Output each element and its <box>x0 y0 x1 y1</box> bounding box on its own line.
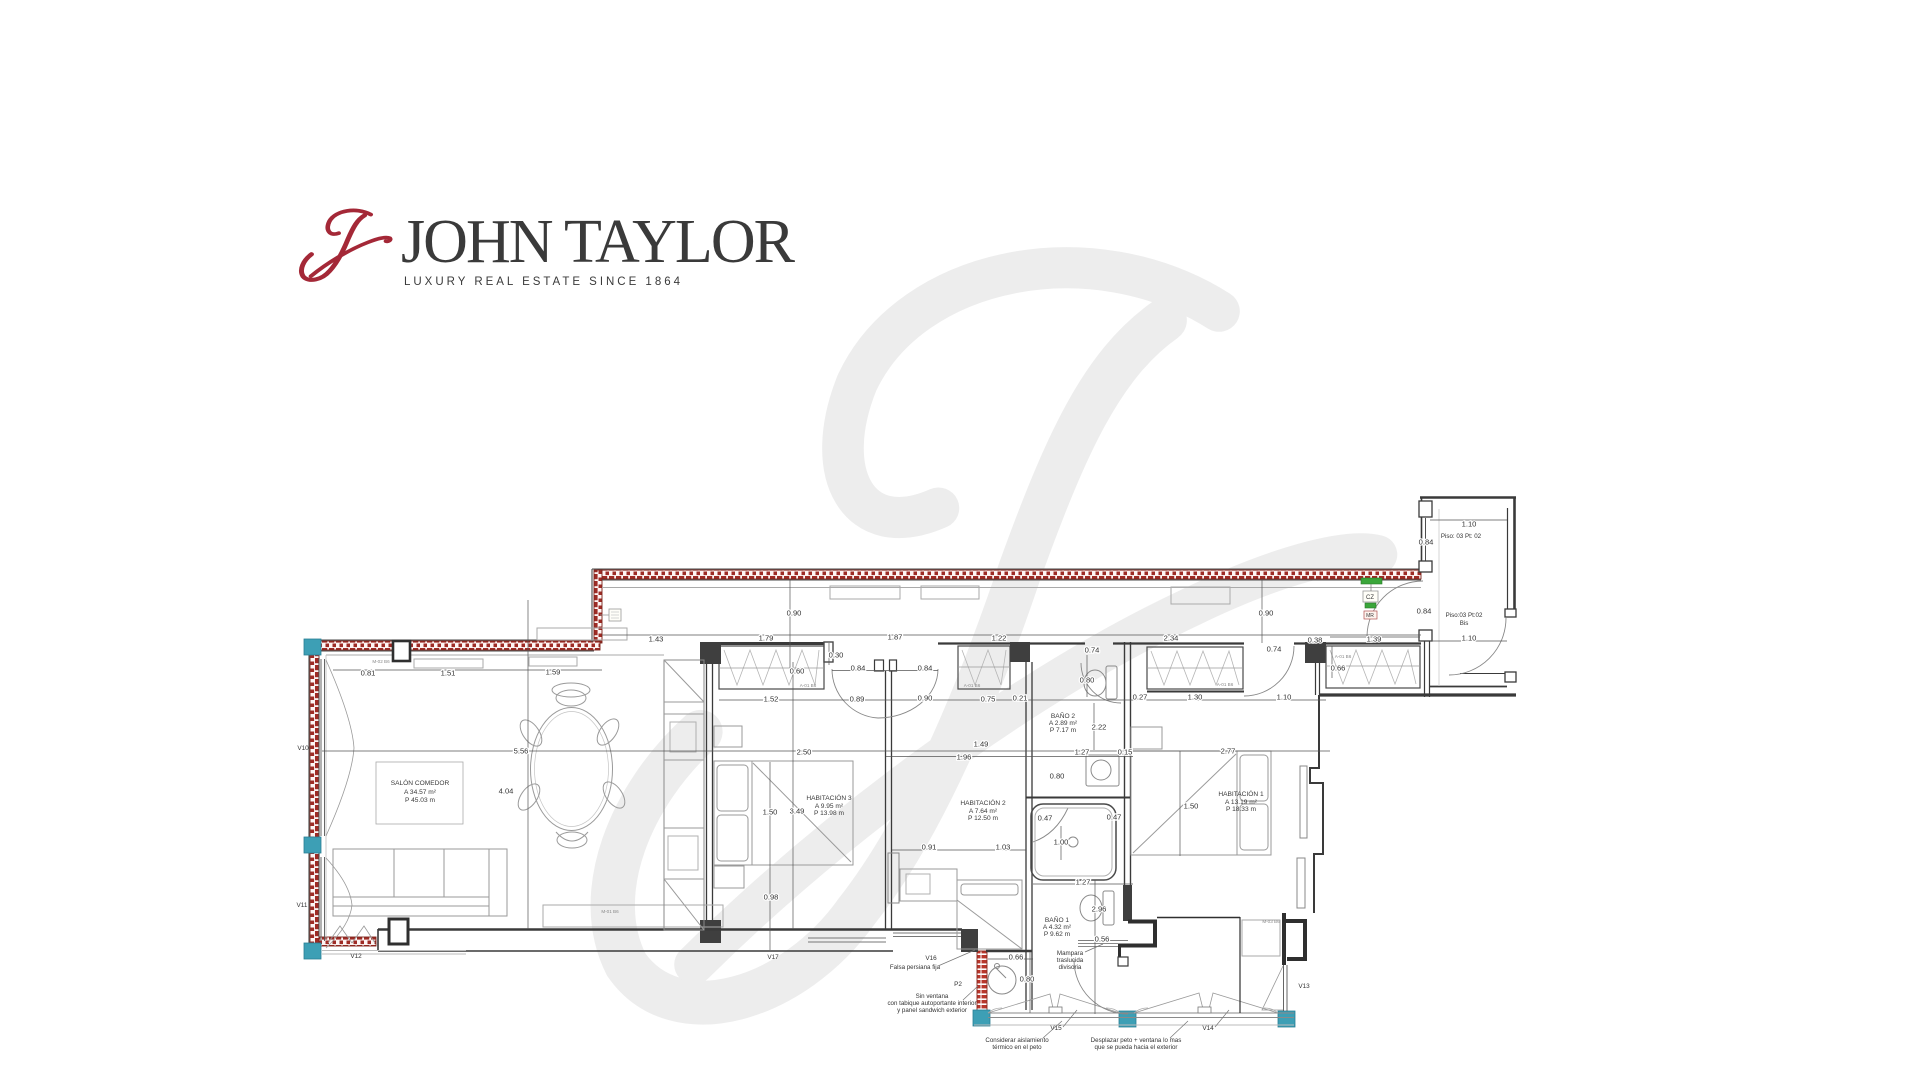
svg-text:1.39: 1.39 <box>1367 635 1382 644</box>
svg-text:1.87: 1.87 <box>888 633 903 642</box>
svg-text:1.59: 1.59 <box>546 668 561 677</box>
svg-text:0.84: 0.84 <box>1419 538 1434 547</box>
svg-text:0.60: 0.60 <box>790 667 805 676</box>
svg-text:V17: V17 <box>767 954 779 961</box>
svg-text:P 18.33 m: P 18.33 m <box>1226 806 1256 813</box>
svg-text:1.51: 1.51 <box>441 669 456 678</box>
svg-text:A-01 B6: A-01 B6 <box>800 683 817 688</box>
svg-text:P 12.50 m: P 12.50 m <box>968 815 998 822</box>
svg-text:V16: V16 <box>925 955 937 962</box>
svg-text:LUXURY REAL ESTATE SINCE 1864: LUXURY REAL ESTATE SINCE 1864 <box>404 276 681 288</box>
svg-text:0.27: 0.27 <box>1133 693 1148 702</box>
svg-text:P 45.03 m: P 45.03 m <box>405 797 435 804</box>
svg-text:P 13.98 m: P 13.98 m <box>814 810 844 817</box>
svg-text:0.84: 0.84 <box>918 664 933 673</box>
svg-text:1.43: 1.43 <box>649 635 664 644</box>
svg-text:Piso:03 Pt:02: Piso:03 Pt:02 <box>1446 612 1483 619</box>
svg-text:Mampara: Mampara <box>1057 950 1084 957</box>
svg-text:1.96: 1.96 <box>957 753 972 762</box>
svg-text:1.03: 1.03 <box>996 843 1011 852</box>
svg-text:1.10: 1.10 <box>1277 693 1292 702</box>
svg-text:Falsa persiana fija: Falsa persiana fija <box>890 964 941 971</box>
svg-text:0.47: 0.47 <box>1038 814 1053 823</box>
svg-text:A 4.32 m²: A 4.32 m² <box>1043 924 1072 931</box>
svg-text:0.74: 0.74 <box>1267 645 1282 654</box>
svg-text:0.90: 0.90 <box>1259 609 1274 618</box>
svg-text:que se pueda hacia el exterior: que se pueda hacia el exterior <box>1095 1044 1178 1051</box>
svg-text:1.10: 1.10 <box>1462 520 1477 529</box>
svg-text:0.80: 0.80 <box>1050 772 1065 781</box>
svg-text:A 7.64 m²: A 7.64 m² <box>969 808 998 815</box>
svg-text:con tabique autoportante inter: con tabique autoportante interior <box>887 1000 976 1007</box>
svg-text:SALÓN COMEDOR: SALÓN COMEDOR <box>391 778 450 787</box>
svg-text:0.90: 0.90 <box>787 609 802 618</box>
svg-text:0.75: 0.75 <box>981 695 996 704</box>
svg-text:M-03 B6: M-03 B6 <box>1262 919 1280 924</box>
svg-text:5.56: 5.56 <box>514 747 529 756</box>
svg-text:1.52: 1.52 <box>764 695 779 704</box>
svg-text:0.21: 0.21 <box>1013 694 1028 703</box>
svg-text:Bis: Bis <box>1460 620 1469 627</box>
svg-text:0.98: 0.98 <box>764 893 779 902</box>
svg-text:0.30: 0.30 <box>829 651 844 660</box>
svg-text:0.91: 0.91 <box>922 843 937 852</box>
svg-text:V14: V14 <box>1202 1025 1214 1032</box>
svg-text:2.34: 2.34 <box>1164 634 1179 643</box>
svg-text:Desplazar peto + ventana lo ma: Desplazar peto + ventana lo mas <box>1091 1037 1182 1044</box>
svg-text:térmico en el peto: térmico en el peto <box>992 1044 1042 1051</box>
svg-text:JOHN TAYLOR: JOHN TAYLOR <box>401 208 796 276</box>
svg-text:0.90: 0.90 <box>918 694 933 703</box>
svg-text:2.50: 2.50 <box>797 748 812 757</box>
svg-text:P2: P2 <box>954 981 962 988</box>
svg-text:A 13.19 m²: A 13.19 m² <box>1225 799 1258 806</box>
svg-text:1.22: 1.22 <box>992 634 1007 643</box>
svg-text:HABITACIÓN 3: HABITACIÓN 3 <box>806 793 852 802</box>
svg-text:0.15: 0.15 <box>1118 748 1133 757</box>
svg-text:A-01 B6: A-01 B6 <box>964 683 981 688</box>
svg-text:1.27: 1.27 <box>1075 748 1090 757</box>
svg-text:HABITACIÓN 2: HABITACIÓN 2 <box>960 798 1006 807</box>
svg-text:Piso: 03 Pt: 02: Piso: 03 Pt: 02 <box>1441 533 1482 540</box>
svg-text:Considerar aislamiento: Considerar aislamiento <box>985 1037 1049 1044</box>
svg-text:BAÑO 2: BAÑO 2 <box>1051 711 1076 720</box>
svg-text:4.04: 4.04 <box>499 787 514 796</box>
svg-text:0.84: 0.84 <box>851 664 866 673</box>
svg-text:traslucida: traslucida <box>1057 957 1084 964</box>
svg-text:0.66: 0.66 <box>1331 664 1346 673</box>
svg-text:0.38: 0.38 <box>1308 636 1323 645</box>
svg-text:P 9.62 m: P 9.62 m <box>1044 931 1071 938</box>
svg-text:divisoria: divisoria <box>1059 964 1082 971</box>
svg-text:1.79: 1.79 <box>759 634 774 643</box>
svg-text:0.47: 0.47 <box>1107 813 1122 822</box>
svg-text:V10: V10 <box>297 745 309 752</box>
svg-text:0.56: 0.56 <box>1095 935 1110 944</box>
svg-text:P 7.17 m: P 7.17 m <box>1050 727 1077 734</box>
svg-text:2.77: 2.77 <box>1221 747 1236 756</box>
svg-text:M-02 B6: M-02 B6 <box>372 659 390 664</box>
svg-text:V12: V12 <box>350 953 362 960</box>
svg-text:A-01 B6: A-01 B6 <box>1335 654 1352 659</box>
svg-text:0.74: 0.74 <box>1085 646 1100 655</box>
svg-text:y panel sandwich exterior: y panel sandwich exterior <box>897 1007 967 1014</box>
svg-text:0.80: 0.80 <box>1080 676 1095 685</box>
svg-text:CZ: CZ <box>1366 595 1374 601</box>
svg-text:0.89: 0.89 <box>850 695 865 704</box>
svg-text:2.96: 2.96 <box>1092 905 1107 914</box>
svg-text:0.66: 0.66 <box>1009 953 1024 962</box>
svg-text:V13: V13 <box>1298 983 1310 990</box>
svg-text:1.00: 1.00 <box>1054 838 1069 847</box>
svg-text:3.49: 3.49 <box>790 807 805 816</box>
svg-text:1.50: 1.50 <box>763 808 778 817</box>
svg-text:Sin ventana: Sin ventana <box>916 993 949 1000</box>
svg-text:0.81: 0.81 <box>361 669 376 678</box>
svg-text:0.84: 0.84 <box>1417 607 1432 616</box>
svg-text:1.10: 1.10 <box>1462 634 1477 643</box>
svg-text:0.80: 0.80 <box>1020 975 1035 984</box>
svg-text:1.49: 1.49 <box>974 740 989 749</box>
svg-text:MR: MR <box>1366 613 1374 619</box>
svg-text:V11: V11 <box>297 902 308 909</box>
svg-text:BAÑO 1: BAÑO 1 <box>1045 915 1070 924</box>
svg-text:1.30: 1.30 <box>1188 693 1203 702</box>
svg-text:2.22: 2.22 <box>1092 723 1107 732</box>
svg-text:HABITACIÓN 1: HABITACIÓN 1 <box>1218 789 1264 798</box>
svg-text:1.50: 1.50 <box>1184 802 1199 811</box>
svg-text:A-01 B6: A-01 B6 <box>1217 682 1234 687</box>
svg-text:M-01 B6: M-01 B6 <box>601 909 619 914</box>
svg-text:A 34.57 m²: A 34.57 m² <box>404 789 437 796</box>
svg-text:A 9.95 m²: A 9.95 m² <box>815 803 844 810</box>
svg-text:A 2.89 m²: A 2.89 m² <box>1049 720 1078 727</box>
svg-text:1.27: 1.27 <box>1076 878 1091 887</box>
